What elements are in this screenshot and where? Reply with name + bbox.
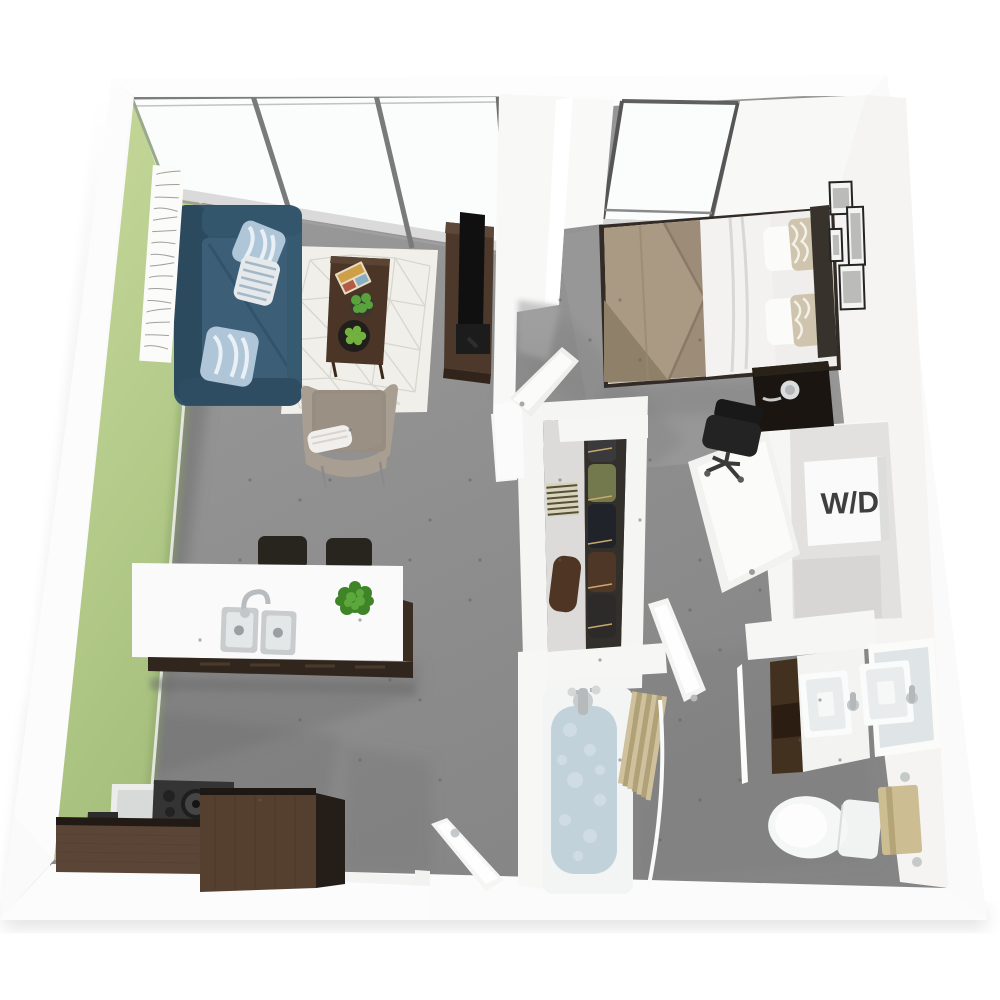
- svg-text:W/D: W/D: [820, 486, 879, 521]
